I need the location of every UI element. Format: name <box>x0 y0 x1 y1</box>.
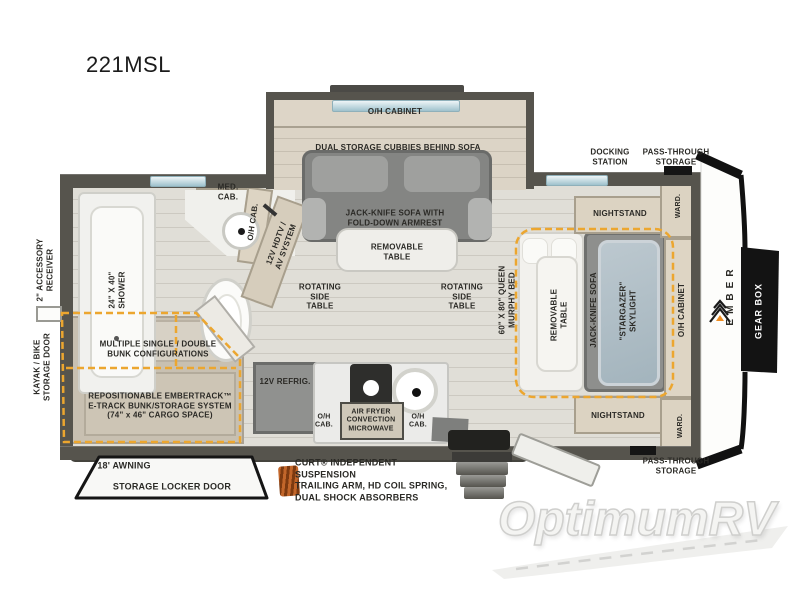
label-pass-through-top: PASS-THROUGH STORAGE <box>636 147 716 166</box>
label-fridge: 12V REFRIG. <box>250 377 320 387</box>
wall-right <box>691 172 704 462</box>
label-bedroom-jackknife-sofa: JACK-KNIFE SOFA <box>589 255 599 365</box>
label-stargazer-skylight: "STARGAZER" SKYLIGHT <box>618 266 637 356</box>
label-rotating-table-right: ROTATING SIDE TABLE <box>427 283 497 312</box>
label-murphy-bed: 60" X 80" QUEEN MURPHY BED <box>497 245 516 355</box>
front-cap-edge-right-bottom <box>741 372 745 449</box>
label-bunk-configurations: MULTIPLE SINGLE / DOUBLE BUNK CONFIGURAT… <box>83 339 233 358</box>
optimumrv-watermark: OptimumRV <box>498 492 798 547</box>
label-etrack-system: REPOSITIONABLE EMBERTRACK™ E-TRACK BUNK/… <box>80 392 240 421</box>
docking-hatch <box>664 166 692 175</box>
label-oh-cab-kitchen-left: O/H CAB. <box>309 414 339 431</box>
floorplan-title: 221MSL <box>86 52 171 78</box>
label-nightstand-bottom: NIGHTSTAND <box>578 411 658 421</box>
label-microwave: AIR FRYER CONVECTION MICROWAVE <box>340 408 402 433</box>
label-gear-box: GEAR BOX <box>754 276 765 346</box>
label-accessory-receiver: 2" ACCESSORY RECEIVER <box>35 230 54 310</box>
label-ward-bottom: WARD. <box>677 406 685 446</box>
entry-door-mat <box>448 430 510 450</box>
label-pass-through-bottom: PASS-THROUGH STORAGE <box>636 456 716 475</box>
label-bedroom-oh-cabinet: O/H CABINET <box>677 270 687 350</box>
label-nightstand-top: NIGHTSTAND <box>580 209 660 219</box>
floorplan-canvas: 221MSL <box>0 0 800 600</box>
label-dual-storage: DUAL STORAGE CUBBIES BEHIND SOFA <box>288 143 508 153</box>
kitchen-sink-drain <box>412 388 421 397</box>
entry-step-1 <box>456 462 508 475</box>
label-removable-table-main: REMOVABLE TABLE <box>352 242 442 261</box>
label-ember-brand: EMBER <box>725 240 737 350</box>
stove-knob <box>363 380 379 396</box>
step-landing <box>452 452 512 462</box>
front-cap-edge-right-top <box>741 175 745 250</box>
label-kayak-door: KAYAK / BIKE STORAGE DOOR <box>32 327 51 407</box>
label-bed-removable-table: REMOVABLE TABLE <box>549 270 568 360</box>
label-suspension: CURT® INDEPENDENT SUSPENSION TRAILING AR… <box>295 458 455 505</box>
front-cap <box>701 157 744 463</box>
label-ward-top: WARD. <box>675 186 683 226</box>
bumper-hatch <box>630 446 656 455</box>
label-docking-station: DOCKING STATION <box>580 147 640 166</box>
sink-drain <box>238 228 245 235</box>
label-awning: 18' AWNING <box>89 461 159 472</box>
label-oh-cabinet-slide: O/H CABINET <box>335 107 455 117</box>
label-jackknife-sofa-main: JACK-KNIFE SOFA WITH FOLD-DOWN ARMREST <box>315 208 475 227</box>
entry-step-2 <box>460 475 506 487</box>
bedroom-window <box>546 175 608 186</box>
label-shower: 24" X 40" SHOWER <box>107 250 126 330</box>
label-rotating-table-left: ROTATING SIDE TABLE <box>285 283 355 312</box>
label-oh-cab-kitchen-right: O/H CAB. <box>403 414 433 431</box>
label-storage-locker: STORAGE LOCKER DOOR <box>102 482 242 493</box>
label-med-cab: MED. CAB. <box>208 182 248 201</box>
bathroom-window <box>150 176 206 187</box>
